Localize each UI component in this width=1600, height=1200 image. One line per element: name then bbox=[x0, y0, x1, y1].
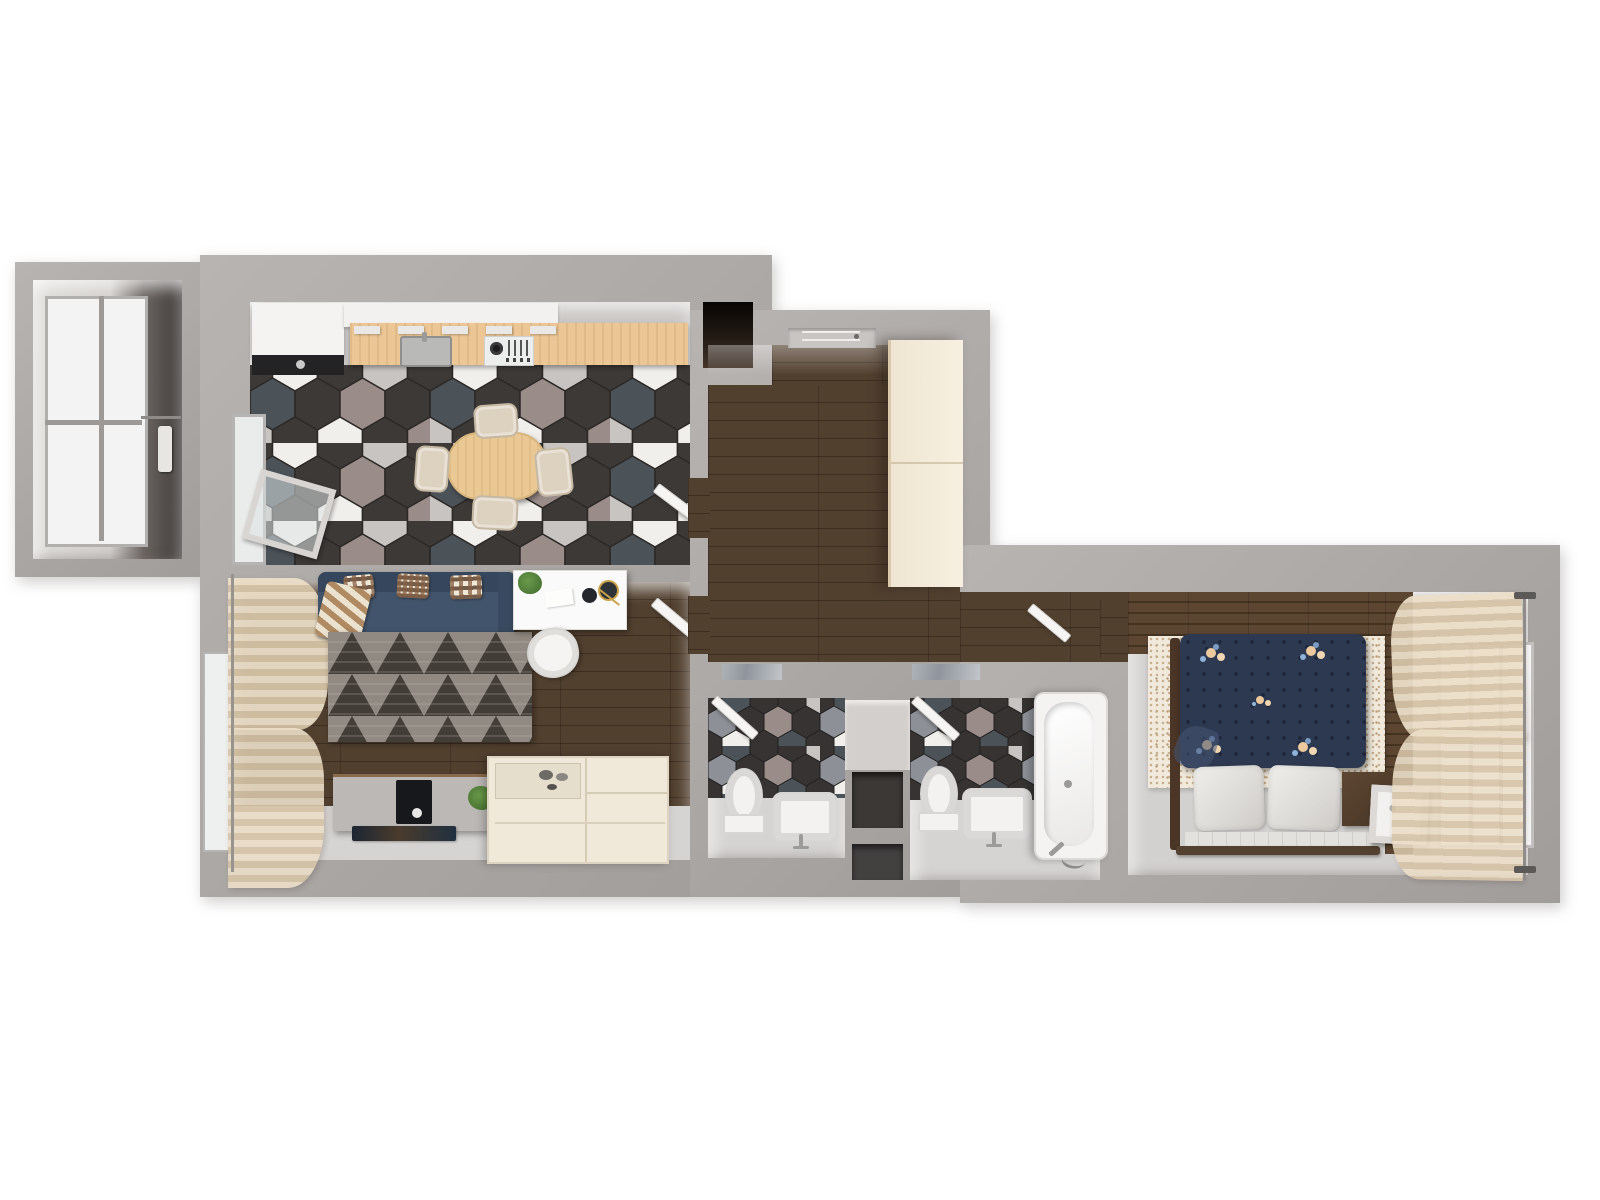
sink-faucet bbox=[422, 332, 427, 342]
drying-rail bbox=[141, 416, 181, 419]
cabinet-handle-tab bbox=[486, 326, 512, 334]
duvet-flower-cluster bbox=[1206, 648, 1216, 658]
bed-foot-rail bbox=[1176, 846, 1380, 855]
duvet-flower-cluster bbox=[1256, 696, 1264, 704]
bath-toilet-tank bbox=[918, 812, 960, 832]
wc-sink bbox=[772, 792, 838, 842]
bathtub-drain bbox=[1064, 780, 1072, 788]
hall-wardrobe bbox=[888, 340, 963, 587]
shaft-niche-lower bbox=[852, 844, 903, 880]
bed-pillow bbox=[1267, 765, 1341, 831]
sofa-pillow bbox=[450, 574, 483, 599]
bedroom-doorway bbox=[1100, 600, 1128, 658]
bed-duvet bbox=[1180, 634, 1366, 768]
living-curtain bbox=[228, 578, 328, 730]
service-shaft bbox=[845, 700, 910, 880]
entry-door-handle bbox=[854, 334, 859, 339]
bedroom-curtain-rod bbox=[1523, 594, 1526, 880]
balcony-window-mullion-h bbox=[45, 420, 142, 425]
entry-door-panel-line bbox=[802, 339, 860, 341]
bath-sink bbox=[962, 788, 1032, 840]
tv-speaker bbox=[412, 808, 422, 818]
hob-knobs bbox=[506, 358, 530, 362]
wc-faucet-handle bbox=[793, 846, 809, 849]
entry-door bbox=[788, 328, 876, 348]
bedroom bbox=[1128, 592, 1528, 875]
cabinet-handle-tab bbox=[398, 326, 424, 334]
living-curtain bbox=[228, 728, 324, 888]
dining-chair bbox=[534, 446, 575, 498]
kitchen-doorway bbox=[688, 478, 710, 538]
wc bbox=[708, 698, 845, 858]
tall-cabinet bbox=[252, 303, 344, 356]
entry-door-panel-line bbox=[802, 331, 860, 333]
sideboard-shelf-line bbox=[495, 822, 665, 824]
sideboard-pebbles bbox=[539, 770, 553, 780]
wc-threshold bbox=[722, 664, 782, 680]
shaft-niche-upper bbox=[852, 772, 903, 828]
bedroom-curtain bbox=[1389, 592, 1526, 745]
rod-bracket-bottom bbox=[1514, 866, 1536, 873]
desk-plant bbox=[518, 572, 542, 594]
bathtub-basin bbox=[1044, 702, 1094, 846]
dining-chair bbox=[471, 495, 519, 531]
desk-bowl bbox=[582, 588, 597, 603]
sideboard-divider-v bbox=[585, 758, 587, 862]
duvet-flower-cluster bbox=[1298, 742, 1308, 752]
bedroom-curtain bbox=[1391, 729, 1526, 881]
sideboard-open-top bbox=[495, 763, 581, 799]
wardrobe-divider bbox=[891, 462, 963, 464]
bath-faucet-handle bbox=[986, 844, 1002, 847]
media-poster bbox=[352, 826, 456, 841]
living-doorway bbox=[688, 596, 710, 654]
sideboard bbox=[487, 756, 669, 864]
sofa-pillow bbox=[396, 573, 429, 599]
sideboard-shelf-line bbox=[587, 792, 667, 794]
kitchen bbox=[250, 302, 690, 565]
hanging-cloth bbox=[158, 426, 172, 472]
dining-table bbox=[447, 432, 547, 500]
cabinet-handle-tab bbox=[530, 326, 556, 334]
triangle-rug bbox=[328, 632, 532, 742]
bed-pillow bbox=[1193, 765, 1265, 831]
hob-burner bbox=[490, 342, 503, 355]
kettle bbox=[296, 360, 305, 369]
balcony-window-mullion-v bbox=[99, 296, 104, 541]
shaft-top-face bbox=[845, 700, 910, 770]
curtain-rod bbox=[231, 574, 234, 872]
wc-toilet-tank bbox=[723, 814, 765, 834]
rod-bracket-top bbox=[1514, 592, 1536, 599]
bathroom bbox=[910, 698, 1100, 880]
floor-plan bbox=[0, 0, 1600, 1200]
cabinet-handle-tab bbox=[354, 326, 380, 334]
apartment-shell bbox=[0, 0, 1600, 1200]
dining-chair bbox=[413, 445, 450, 493]
bathtub bbox=[1034, 692, 1108, 860]
bath-threshold bbox=[912, 664, 980, 680]
cabinet-handle-tab bbox=[442, 326, 468, 334]
dining-chair bbox=[473, 403, 519, 440]
living-room bbox=[230, 582, 690, 860]
hob-grate bbox=[508, 340, 528, 356]
balcony bbox=[33, 280, 182, 559]
duvet-flower-cluster bbox=[1306, 646, 1316, 656]
